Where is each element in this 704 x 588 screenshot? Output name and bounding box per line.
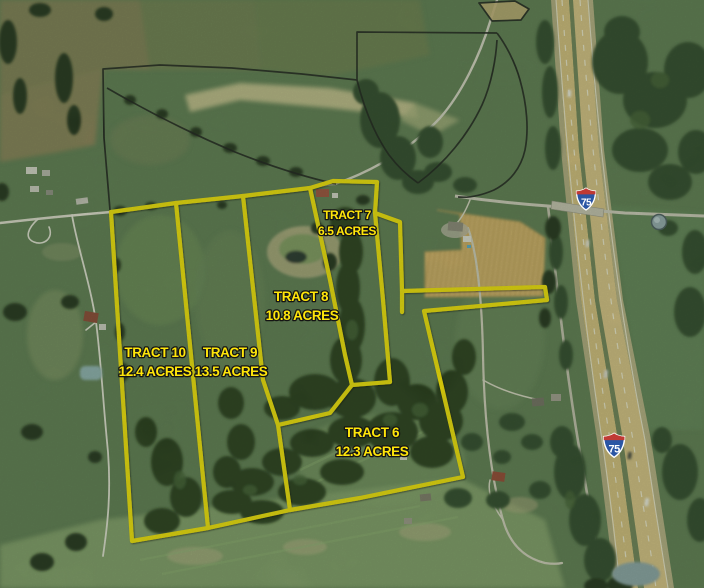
shield-route-number: 75 <box>581 198 592 209</box>
tract-10-name: TRACT 10 <box>124 345 185 360</box>
tract-7-acreage: 6.5 ACRES <box>318 224 376 238</box>
tract-9-name: TRACT 9 <box>203 345 257 360</box>
aerial-tract-map: 75 75 TRACT 10 12.4 ACRES TRACT 9 13.5 A… <box>0 0 704 588</box>
tract-8-name: TRACT 8 <box>274 289 329 304</box>
tract-7-name: TRACT 7 <box>323 208 372 222</box>
satellite-map-canvas: 75 75 TRACT 10 12.4 ACRES TRACT 9 13.5 A… <box>0 0 704 588</box>
grain-overlay <box>0 0 704 588</box>
tract-6-name: TRACT 6 <box>345 425 400 440</box>
tract-8-acreage: 10.8 ACRES <box>266 308 339 323</box>
tract-10-acreage: 12.4 ACRES <box>119 364 192 379</box>
tract-9-acreage: 13.5 ACRES <box>195 364 268 379</box>
tract-6-acreage: 12.3 ACRES <box>336 444 409 459</box>
shield-route-number: 75 <box>609 443 621 455</box>
